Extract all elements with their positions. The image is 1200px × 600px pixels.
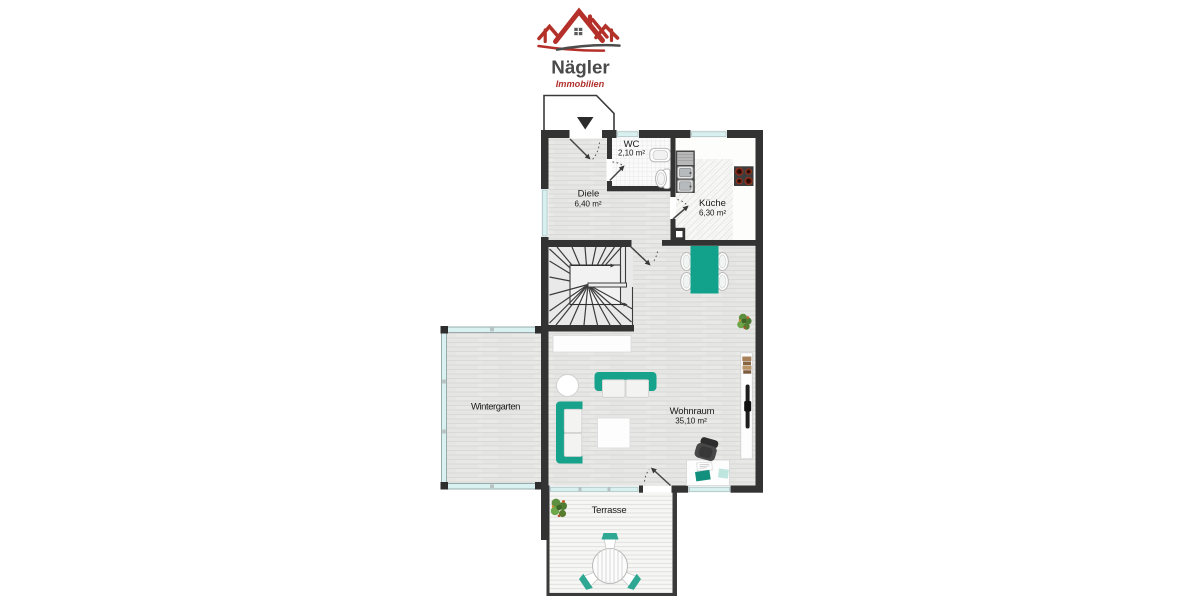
svg-text:Wohnraum: Wohnraum [670,406,715,417]
svg-text:Immobilien: Immobilien [556,79,605,89]
svg-text:Diele: Diele [578,189,600,200]
svg-text:Nägler: Nägler [551,57,610,78]
svg-text:6,30 m²: 6,30 m² [699,209,726,218]
svg-text:2,10 m²: 2,10 m² [618,149,645,158]
svg-text:Wintergarten: Wintergarten [471,402,520,413]
svg-text:Terrasse: Terrasse [592,505,627,516]
svg-text:35,10 m²: 35,10 m² [675,417,707,426]
svg-text:Küche: Küche [699,198,726,209]
svg-text:6,40 m²: 6,40 m² [574,200,601,209]
